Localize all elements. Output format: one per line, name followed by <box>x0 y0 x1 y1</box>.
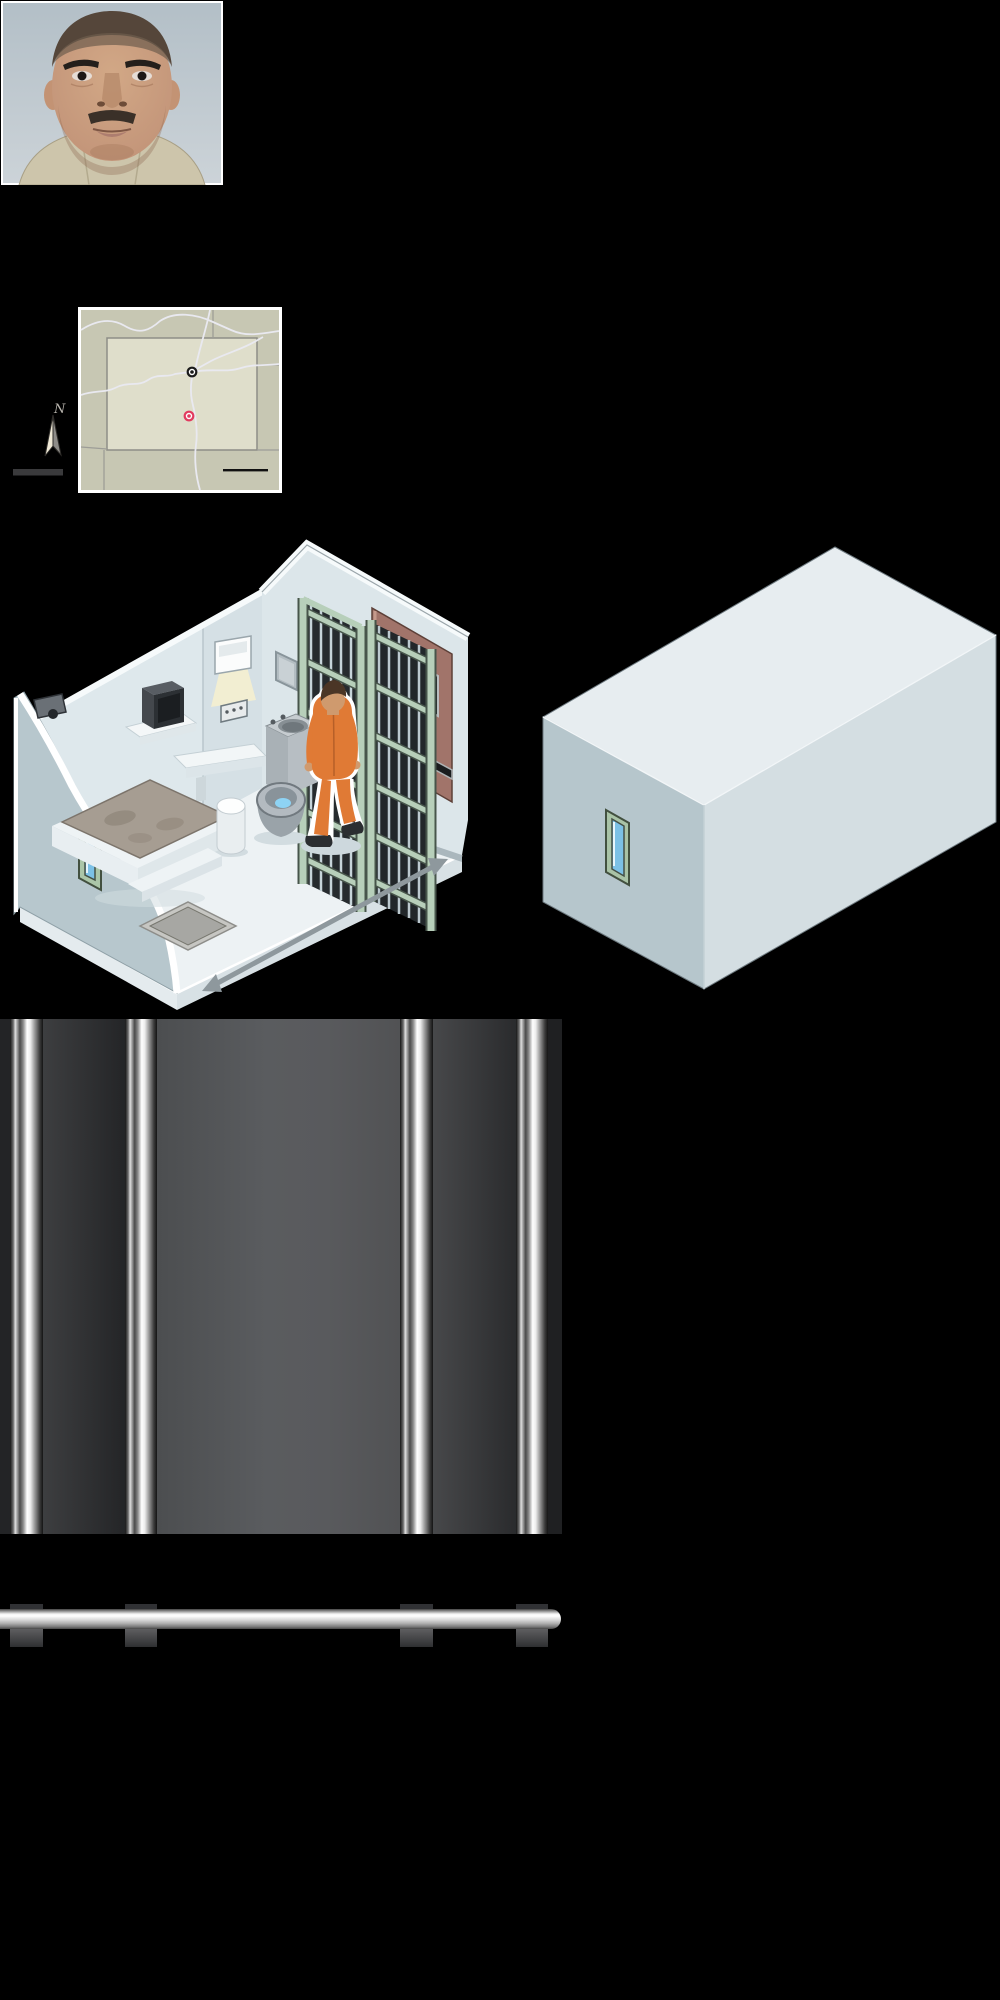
compass-needle-left <box>45 415 53 456</box>
tv <box>142 681 184 729</box>
bars-backdrop-panel <box>548 1019 562 1534</box>
bars-backdrop-panel <box>433 1019 516 1534</box>
prison-bar <box>516 1019 548 1534</box>
legend-bar <box>13 469 63 476</box>
city-marker <box>187 367 198 378</box>
bars-backdrop-panel <box>43 1019 125 1534</box>
cell-exterior-illustration <box>535 540 1000 995</box>
scale-bar <box>223 469 268 471</box>
prison-bar <box>10 1019 43 1534</box>
prison-marker <box>184 411 195 422</box>
bottom-rail-graphic <box>0 1604 566 1649</box>
prison-bar <box>400 1019 433 1534</box>
state-outline <box>107 338 257 450</box>
prison-bar <box>125 1019 157 1534</box>
rail-tube <box>0 1609 561 1629</box>
stool <box>217 798 245 854</box>
compass-label: N <box>53 402 66 417</box>
bar-stub <box>516 1629 548 1647</box>
north-compass: N <box>45 402 66 456</box>
bar-stub <box>400 1629 433 1647</box>
inmate-left-shoe <box>305 835 332 847</box>
box-window-slit <box>606 810 629 885</box>
locator-map: N <box>8 300 290 500</box>
bar-stub <box>10 1629 43 1647</box>
inmate-figure <box>301 680 364 855</box>
bars-backdrop-panel <box>157 1019 400 1534</box>
bar-stub <box>125 1629 157 1647</box>
toilet-water <box>275 798 291 808</box>
compass-needle-right <box>53 415 61 455</box>
booking-photo <box>1 1 223 185</box>
infographic-canvas: N <box>0 0 1000 2000</box>
cell-cutaway-illustration <box>0 530 480 1015</box>
concrete-box <box>543 547 996 989</box>
prison-bars-graphic <box>0 1019 562 1534</box>
